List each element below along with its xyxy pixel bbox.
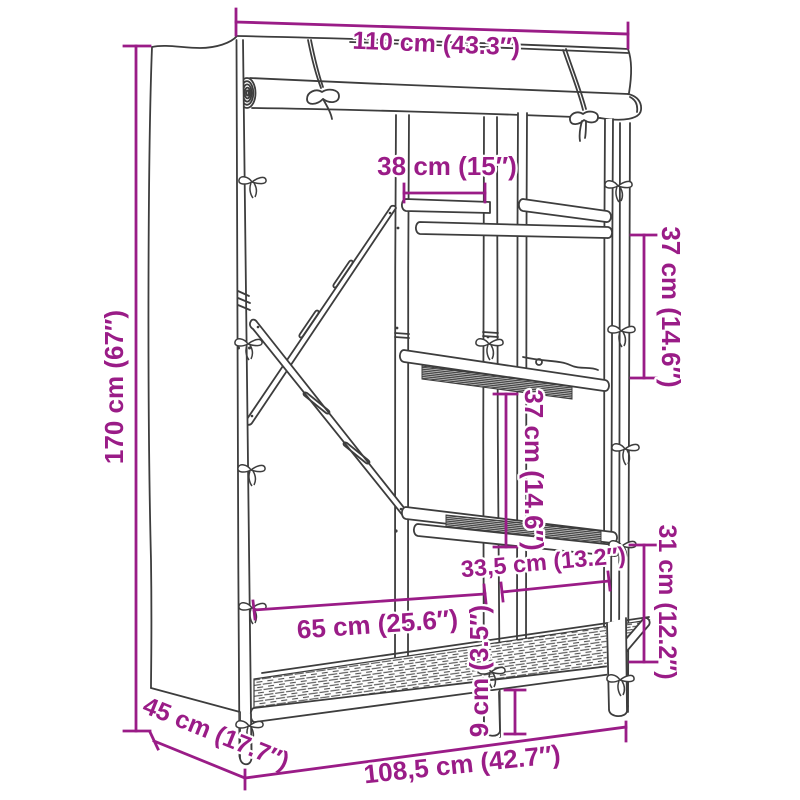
svg-text:37 cm (14.6″): 37 cm (14.6″)	[519, 389, 549, 550]
svg-text:38 cm (15″): 38 cm (15″)	[377, 151, 517, 181]
svg-text:170 cm (67″): 170 cm (67″)	[99, 310, 129, 464]
svg-text:9 cm (3.5″): 9 cm (3.5″)	[464, 605, 494, 737]
svg-text:37 cm (14.6″): 37 cm (14.6″)	[656, 226, 686, 387]
svg-text:31 cm (12.2″): 31 cm (12.2″)	[653, 524, 681, 679]
